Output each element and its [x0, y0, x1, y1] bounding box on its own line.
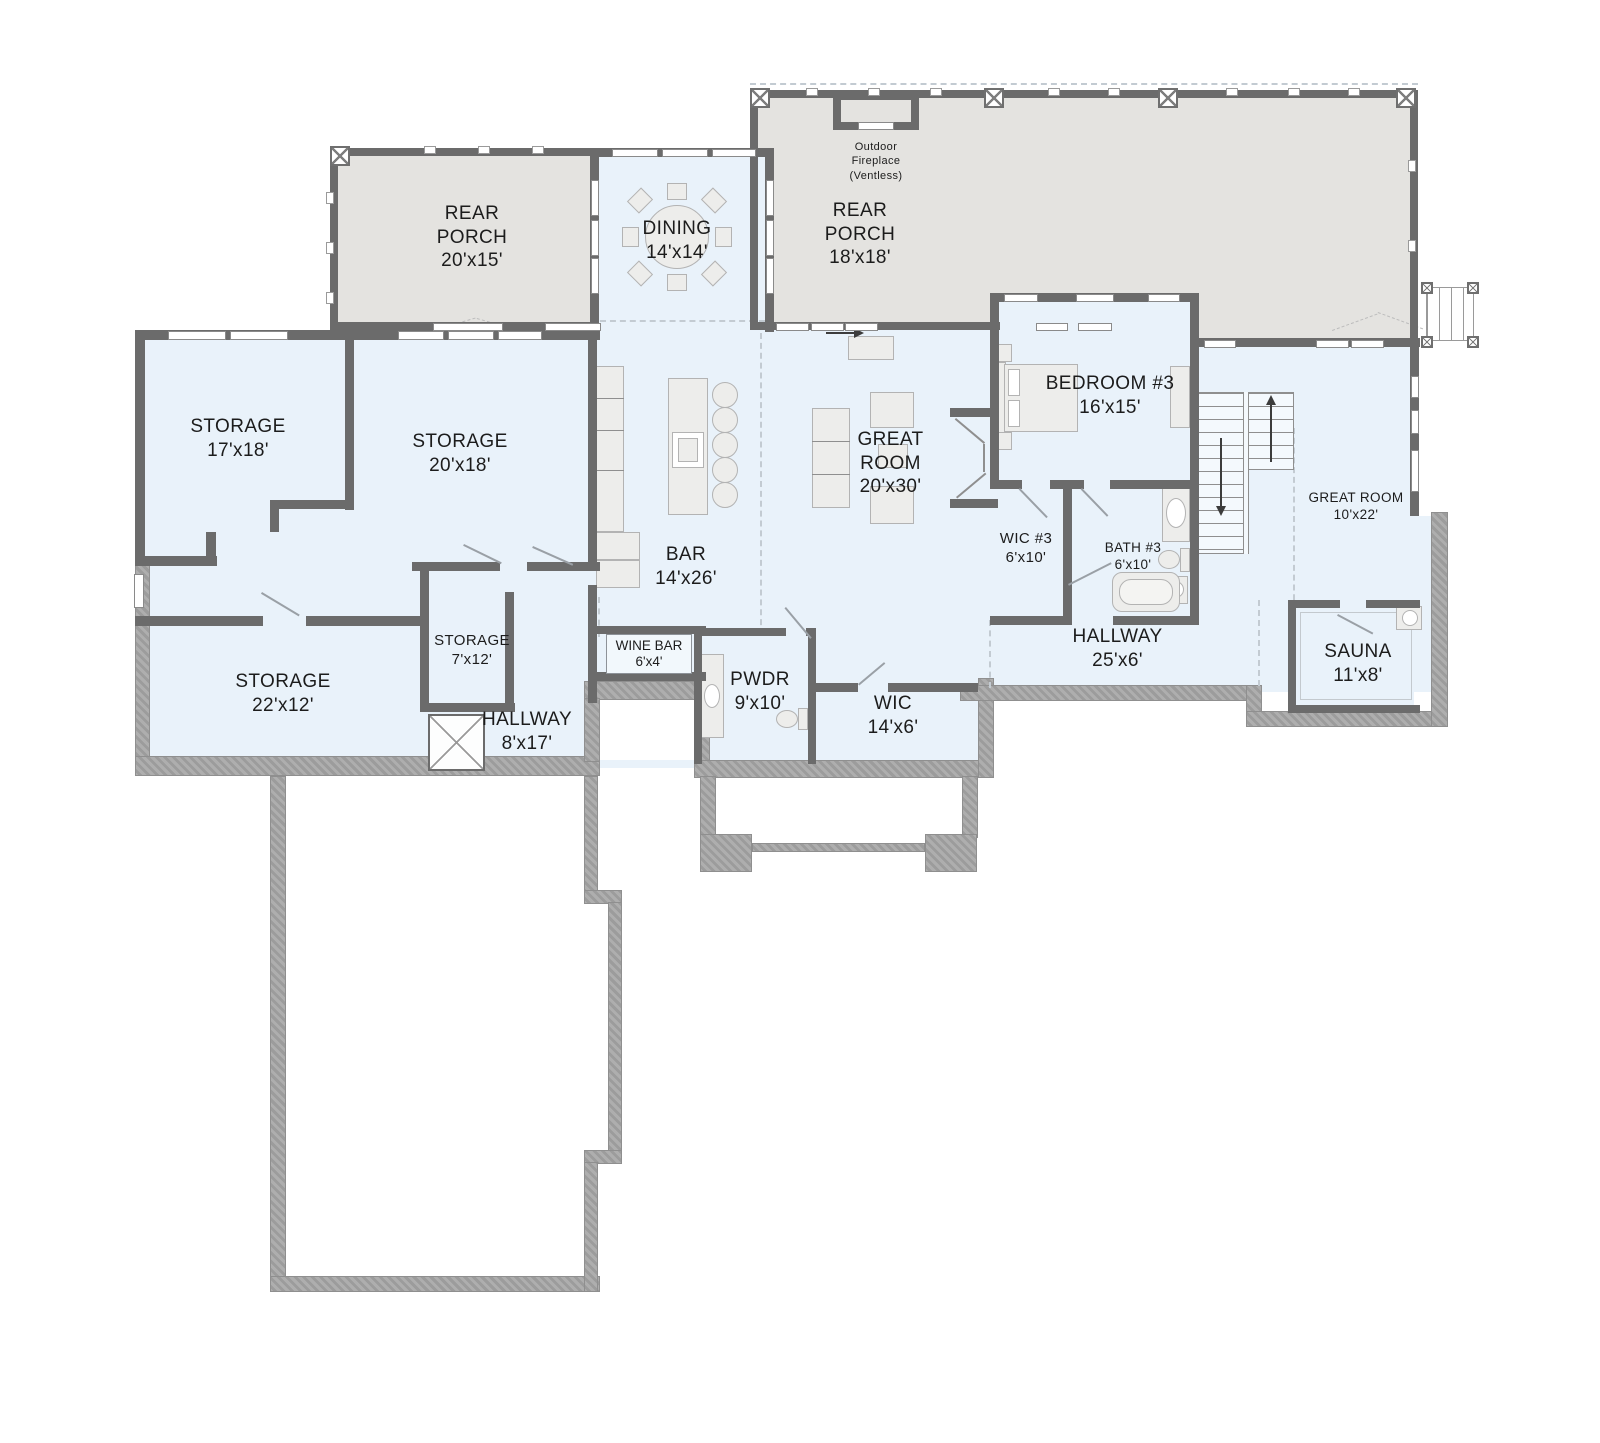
- post-tick-icon: [1408, 160, 1416, 172]
- bar-stool-icon: [712, 407, 738, 433]
- window: [230, 331, 288, 340]
- room-label-bedroom-3: BEDROOM #3 16'x15': [1020, 372, 1200, 419]
- foundation-wall: [584, 776, 598, 896]
- floor-plan: WINE BAR 6'x4': [0, 0, 1600, 1443]
- wall: [1288, 600, 1296, 713]
- label-outdoor-fireplace: Outdoor Fireplace (Ventless): [826, 140, 926, 183]
- window: [1351, 340, 1384, 348]
- wall: [1410, 90, 1418, 346]
- stairs-up-arrowhead-icon: [1266, 395, 1276, 405]
- window: [776, 323, 809, 331]
- window: [1204, 340, 1236, 348]
- window: [134, 574, 144, 608]
- wall: [694, 634, 702, 764]
- room-label-rear-porch-right: REAR PORCH 18'x18': [770, 199, 950, 270]
- window: [1076, 294, 1114, 302]
- hearth-opening: [858, 122, 894, 130]
- foundation-wall: [584, 698, 600, 762]
- wall: [206, 532, 216, 566]
- wall: [596, 626, 706, 634]
- porch-post-icon: [1421, 282, 1433, 294]
- open-plan-divider: [1258, 600, 1260, 686]
- stairs-down-arrowhead-icon: [1216, 506, 1226, 516]
- wall: [750, 90, 758, 330]
- bar-stool-icon: [712, 382, 738, 408]
- foundation-wall: [700, 776, 716, 838]
- wall: [588, 585, 597, 703]
- wine-bar-counter: WINE BAR 6'x4': [606, 634, 692, 674]
- room-label-dining: DINING 14'x14': [597, 217, 757, 264]
- porch-post-icon: [1421, 336, 1433, 348]
- window: [545, 323, 601, 331]
- wall: [1113, 616, 1199, 625]
- window: [712, 149, 756, 157]
- wall: [330, 148, 595, 156]
- stairs-down-arrow: [1220, 438, 1222, 508]
- window: [811, 323, 844, 331]
- exterior-stairs-icon: [1426, 287, 1474, 341]
- post-tick-icon: [478, 146, 490, 154]
- wall: [1063, 480, 1072, 625]
- window: [1148, 294, 1180, 302]
- foundation-wall: [700, 834, 752, 872]
- room-label-great-room-upper: GREAT ROOM 10'x22': [1296, 490, 1416, 523]
- room-label-wic-3: WIC #3 6'x10': [988, 530, 1064, 567]
- post-tick-icon: [424, 146, 436, 154]
- room-label-pwdr: PWDR 9'x10': [712, 668, 808, 715]
- wall: [990, 480, 1022, 489]
- porch-post-icon: [1396, 88, 1416, 108]
- room-dims-wine-bar: 6'x4': [636, 654, 663, 670]
- room-label-hallway-8x17: HALLWAY 8'x17': [477, 708, 577, 755]
- room-label-bar: BAR 14'x26': [630, 543, 742, 590]
- post-tick-icon: [1408, 240, 1416, 252]
- wall: [1190, 293, 1199, 625]
- window: [1078, 323, 1112, 331]
- window: [1411, 410, 1419, 434]
- stair-stringer: [1243, 392, 1249, 554]
- wall: [1288, 600, 1340, 608]
- bar-stool-icon: [712, 432, 738, 458]
- areaway: [600, 700, 694, 760]
- window: [1004, 294, 1038, 302]
- post-tick-icon: [1288, 88, 1300, 96]
- dining-chair-icon: [667, 183, 687, 200]
- porch-post-icon: [1158, 88, 1178, 108]
- wall: [135, 556, 217, 566]
- room-label-wic: WIC 14'x6': [845, 692, 941, 739]
- wall: [1366, 600, 1420, 608]
- window: [448, 331, 494, 340]
- wall: [990, 616, 1067, 625]
- foundation-wall: [608, 902, 622, 1152]
- room-label-storage-7x12: STORAGE 7'x12': [430, 632, 514, 669]
- window: [1411, 450, 1419, 492]
- window: [591, 180, 599, 216]
- sideboard-icon: [848, 336, 894, 360]
- wall: [306, 616, 420, 626]
- entry-arrow: [826, 332, 856, 334]
- post-tick-icon: [930, 88, 942, 96]
- foundation-wall: [1431, 512, 1448, 727]
- post-tick-icon: [806, 88, 818, 96]
- open-plan-divider: [760, 333, 762, 635]
- window: [498, 331, 542, 340]
- wall: [808, 636, 816, 764]
- post-tick-icon: [326, 242, 334, 254]
- foundation-wall: [270, 1276, 600, 1292]
- wall: [588, 330, 597, 565]
- room-label-hallway-25x6: HALLWAY 25'x6': [1060, 625, 1175, 672]
- wall: [1288, 705, 1420, 713]
- window: [845, 323, 878, 331]
- wall: [1110, 480, 1199, 489]
- foundation-wall: [135, 756, 600, 776]
- foundation-wall: [962, 776, 978, 838]
- window: [168, 331, 226, 340]
- room-label-bath-3: BATH #3 6'x10': [1095, 540, 1171, 573]
- foundation-wall: [1246, 711, 1448, 727]
- wall: [345, 340, 354, 510]
- post-tick-icon: [1108, 88, 1120, 96]
- cabinet-run-icon: [596, 366, 624, 532]
- sink-icon: [1166, 498, 1186, 528]
- room-label-rear-porch-left: REAR PORCH 20'x15': [382, 202, 562, 273]
- window: [1411, 376, 1419, 398]
- post-tick-icon: [326, 292, 334, 304]
- post-tick-icon: [868, 88, 880, 96]
- wall: [816, 683, 858, 692]
- window: [612, 149, 658, 157]
- foundation-wall: [584, 681, 710, 700]
- foundation-wall: [694, 760, 994, 778]
- wall: [750, 90, 1418, 98]
- window: [398, 331, 444, 340]
- open-plan-divider: [989, 620, 991, 688]
- open-plan-divider: [750, 83, 1418, 85]
- wall: [270, 500, 279, 532]
- room-label-great-room-main: GREAT ROOM 20'x30': [838, 428, 943, 499]
- foundation-wall: [752, 843, 925, 852]
- foundation-wall: [270, 776, 286, 1292]
- foundation-wall: [925, 834, 977, 872]
- window: [1316, 340, 1349, 348]
- wall: [135, 616, 263, 626]
- post-tick-icon: [1226, 88, 1238, 96]
- wall: [990, 293, 999, 489]
- post-tick-icon: [532, 146, 544, 154]
- post-tick-icon: [1348, 88, 1360, 96]
- wall: [420, 562, 429, 712]
- room-label-wine-bar: WINE BAR: [616, 638, 683, 654]
- pillow-icon: [1008, 400, 1020, 427]
- bar-stool-icon: [712, 457, 738, 483]
- porch-post-icon: [750, 88, 770, 108]
- wall: [270, 500, 354, 509]
- room-label-storage-20x18: STORAGE 20'x18': [380, 430, 540, 477]
- porch-post-icon: [984, 88, 1004, 108]
- room-label-sauna: SAUNA 11'x8': [1308, 640, 1408, 687]
- porch-post-icon: [1467, 336, 1479, 348]
- wall: [135, 330, 145, 563]
- porch-post-icon: [1467, 282, 1479, 294]
- bar-stool-icon: [712, 482, 738, 508]
- foundation-wall: [584, 1162, 598, 1292]
- dining-chair-icon: [667, 274, 687, 291]
- room-label-storage-17x18: STORAGE 17'x18': [158, 415, 318, 462]
- porch-post-icon: [330, 146, 350, 166]
- pillow-icon: [1008, 369, 1020, 396]
- post-tick-icon: [1048, 88, 1060, 96]
- fireplace-icon: [950, 499, 998, 508]
- window: [1036, 323, 1068, 331]
- post-tick-icon: [326, 192, 334, 204]
- wall: [700, 628, 786, 636]
- window: [662, 149, 708, 157]
- foundation-wall: [960, 685, 1262, 701]
- open-plan-divider: [600, 320, 765, 322]
- room-label-storage-22x12: STORAGE 22'x12': [203, 670, 363, 717]
- toilet-tank-icon: [1180, 548, 1190, 572]
- window: [433, 323, 503, 331]
- armchair-icon: [870, 392, 914, 428]
- wall: [888, 683, 978, 692]
- stairs-up-arrow: [1270, 404, 1272, 462]
